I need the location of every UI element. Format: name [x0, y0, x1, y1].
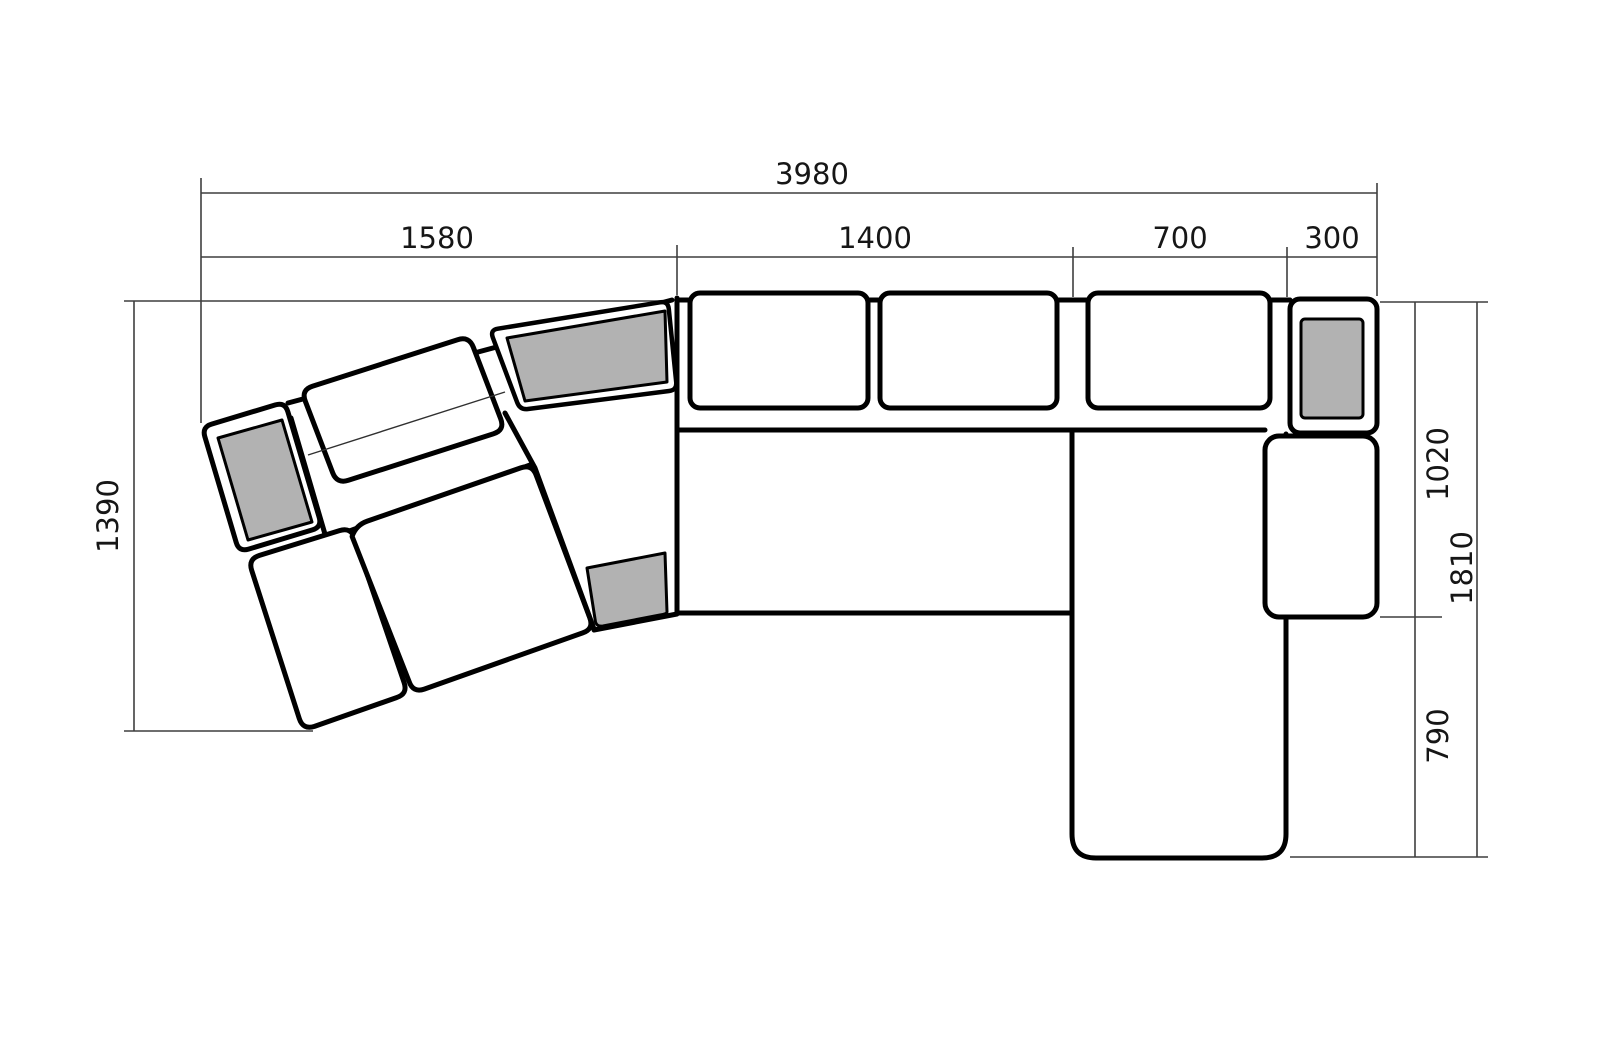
chaise-outline [1072, 430, 1286, 858]
label-right-depth-upper: 1020 [1421, 427, 1455, 501]
label-armrest-width: 300 [1304, 221, 1359, 255]
drawing-canvas: 3980 1580 1400 700 300 1390 700 1020 181… [0, 0, 1600, 1064]
label-overall-width: 3980 [775, 157, 849, 191]
label-middle-width: 1400 [838, 221, 912, 255]
label-seat-width: 700 [1152, 221, 1207, 255]
backrest-cushion-2 [880, 293, 1057, 408]
label-wing-depth: 1390 [91, 479, 125, 553]
backrest-cushion-3 [1088, 293, 1270, 408]
sofa-dimension-drawing: 3980 1580 1400 700 300 1390 700 1020 181… [0, 0, 1600, 1064]
label-right-depth-total: 1810 [1445, 531, 1479, 605]
sofa-angled-wing [204, 300, 677, 727]
corner-filler-cushion [587, 553, 667, 626]
label-chaise-extension: 790 [1421, 708, 1455, 763]
label-wing-width: 1580 [400, 221, 474, 255]
wing-backrest-cushion [304, 339, 502, 481]
sofa-straight-section [677, 293, 1377, 858]
corner-seat-cushion [1265, 436, 1377, 617]
backrest-cushion-1 [690, 293, 868, 408]
right-armrest-pillow [1301, 319, 1363, 418]
